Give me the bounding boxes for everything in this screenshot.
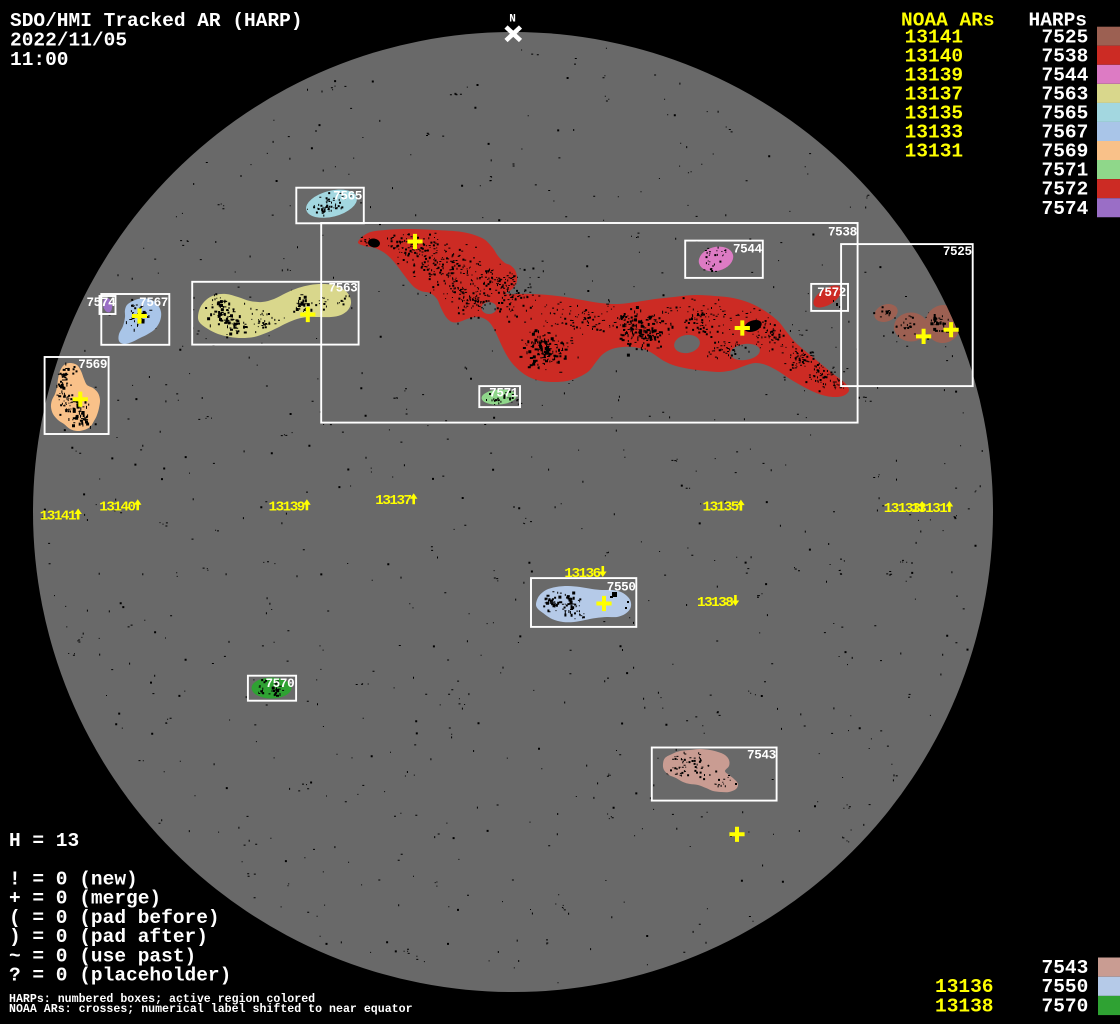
- svg-text:13137: 13137: [375, 493, 411, 509]
- svg-text:13135: 13135: [703, 500, 739, 516]
- svg-text:7550: 7550: [607, 581, 636, 595]
- svg-text:7570: 7570: [1042, 995, 1089, 1017]
- svg-text:? = 0 (placeholder): ? = 0 (placeholder): [9, 965, 231, 987]
- svg-text:7574: 7574: [86, 296, 116, 310]
- svg-text:N: N: [509, 14, 516, 26]
- svg-text:7525: 7525: [943, 245, 972, 259]
- svg-text:7543: 7543: [747, 749, 776, 763]
- svg-text:7570: 7570: [265, 677, 294, 691]
- svg-text:7567: 7567: [139, 296, 168, 310]
- svg-text:13138: 13138: [697, 595, 733, 611]
- svg-text:7572: 7572: [817, 286, 846, 300]
- svg-text:H = 13: H = 13: [9, 830, 79, 852]
- svg-text:13140: 13140: [99, 499, 135, 515]
- svg-text:13136: 13136: [564, 566, 600, 582]
- svg-text:7569: 7569: [78, 358, 107, 372]
- svg-text:7544: 7544: [733, 242, 763, 256]
- svg-text:7571: 7571: [489, 387, 519, 401]
- svg-text:NOAA ARs: crosses; numerical l: NOAA ARs: crosses; numerical label shift…: [9, 1003, 413, 1016]
- svg-text:7538: 7538: [828, 226, 857, 240]
- svg-text:7563: 7563: [329, 281, 358, 295]
- svg-text:7574: 7574: [1042, 198, 1089, 220]
- svg-text:13138: 13138: [935, 995, 994, 1017]
- svg-text:13131: 13131: [911, 501, 947, 517]
- svg-text:13131: 13131: [905, 141, 964, 163]
- svg-text:7565: 7565: [333, 190, 362, 204]
- svg-text:13139: 13139: [269, 499, 305, 515]
- svg-text:13141: 13141: [40, 509, 76, 525]
- svg-text:11:00: 11:00: [10, 49, 69, 71]
